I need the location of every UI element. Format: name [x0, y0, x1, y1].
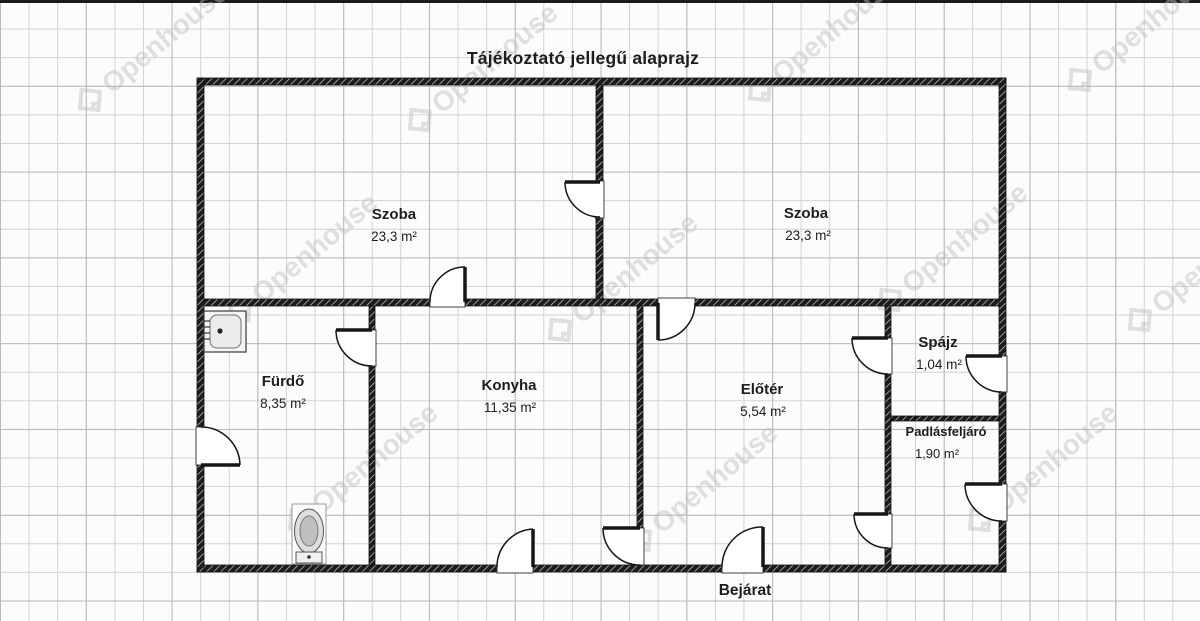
watermark-text: Openhouse	[896, 177, 1034, 300]
wall-spajz-padlas	[891, 416, 999, 421]
toilet-icon	[292, 504, 326, 564]
wall-konyha-eloter	[637, 306, 643, 565]
room-area-konyha: 11,35 m²	[484, 400, 537, 415]
room-name-eloter: Előtér	[741, 381, 784, 398]
wall-horizontal	[204, 299, 999, 306]
watermark-logo-icon	[1062, 62, 1099, 99]
watermark-text: Openhouse	[1146, 197, 1200, 320]
entrance-label: Bejárat	[670, 582, 820, 600]
room-area-eloter: 5,54 m²	[740, 404, 786, 419]
room-area-spajz: 1,04 m²	[916, 357, 962, 372]
room-name-konyha: Konyha	[481, 377, 537, 394]
watermark-text: Openhouse	[766, 0, 904, 89]
room-area-padlasfeljaro: 1,90 m²	[915, 446, 960, 461]
sink-icon	[203, 311, 246, 352]
room-name-szoba-left: Szoba	[372, 206, 417, 223]
watermark-logo-icon	[542, 312, 579, 349]
watermark: Openhouse	[400, 0, 563, 141]
watermark-text: Openhouse	[246, 187, 384, 310]
watermark-logo-icon	[72, 82, 109, 119]
door-bejarat-area	[722, 527, 763, 567]
watermark-logo-icon	[1122, 302, 1159, 339]
floor-plan: OpenhouseOpenhouseOpenhouseOpenhouseOpen…	[0, 0, 1200, 621]
watermark-text: Openhouse	[1086, 0, 1200, 79]
watermark-text: Openhouse	[646, 417, 784, 540]
watermark-logo-icon	[742, 72, 779, 109]
room-name-furdo: Fürdő	[262, 373, 305, 390]
plan-title: Tájékoztató jellegű alaprajz	[363, 48, 803, 69]
watermark: Openhouse	[70, 0, 233, 121]
wall-bottom	[197, 565, 1006, 572]
watermark-logo-icon	[402, 102, 439, 139]
watermark: Openhouse	[220, 187, 383, 331]
watermark: Openhouse	[1120, 197, 1200, 341]
watermark: Openhouse	[1060, 0, 1200, 101]
wall-top	[197, 78, 1006, 85]
wall-left	[197, 78, 204, 572]
room-area-szoba-left: 23,3 m²	[371, 229, 417, 244]
room-area-szoba-right: 23,3 m²	[785, 228, 831, 243]
room-area-furdo: 8,35 m²	[260, 396, 306, 411]
room-name-spajz: Spájz	[918, 334, 957, 351]
room-name-padlasfeljaro: Padlásfeljáró	[906, 424, 987, 439]
room-name-szoba-right: Szoba	[784, 205, 829, 222]
